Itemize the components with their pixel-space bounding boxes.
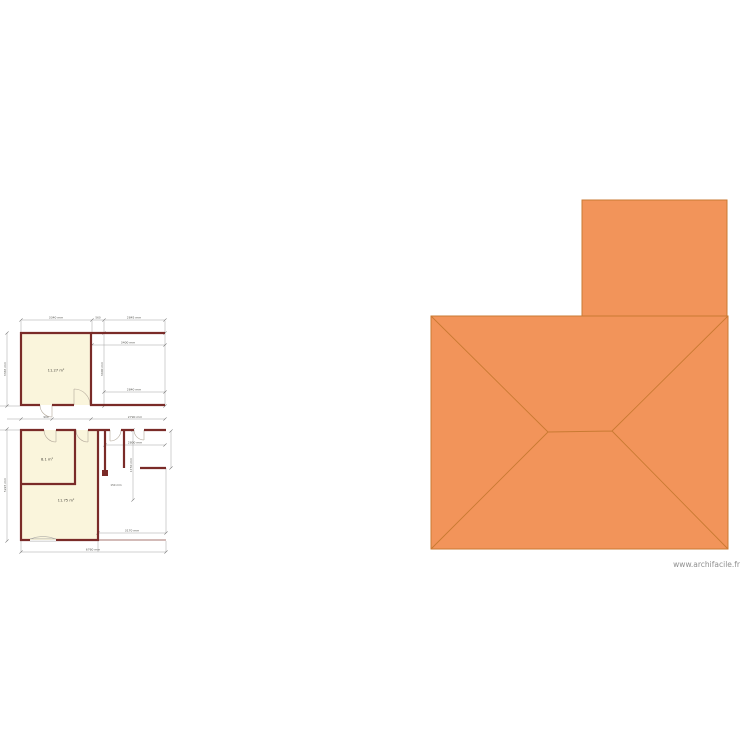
dim-label-left-top: 3365 mm xyxy=(3,362,7,377)
room-middle-area-label: 8.1 m² xyxy=(41,458,54,462)
watermark-text: www.archifacile.fr xyxy=(673,560,741,569)
dim-label-topright-v: 3400 mm xyxy=(100,362,104,377)
wall-pier[interactable] xyxy=(102,470,108,476)
dim-label-bottomright-h: 2800 mm xyxy=(128,441,143,445)
roof-main-rect[interactable] xyxy=(431,316,728,549)
dim-label-top-c: 2845 mm xyxy=(127,316,142,320)
roof-extension-rect[interactable] xyxy=(582,200,727,317)
dim-label-topright-h1: 3400 mm xyxy=(121,341,136,345)
dim-label-bottomright-v: 1750 mm xyxy=(129,458,133,473)
dim-label-corridor-a: 900 xyxy=(43,415,48,419)
dim-label-bottomright-small: 150 mm xyxy=(110,483,122,487)
floor-plan: 11.27 m² 8.1 m² 11.75 m² 3340 mm 560 284… xyxy=(0,316,173,554)
dim-label-corridor-b: 2790 mm xyxy=(128,415,143,419)
plan-canvas: 11.27 m² 8.1 m² 11.75 m² 3340 mm 560 284… xyxy=(0,0,750,750)
dim-label-bottom-b: 6760 mm xyxy=(86,548,101,552)
dim-label-topright-h2: 2840 mm xyxy=(127,388,142,392)
dim-label-top-a: 3340 mm xyxy=(49,316,64,320)
dim-label-left-bottom: 5225 mm xyxy=(3,478,7,493)
room-bottom-area-label: 11.75 m² xyxy=(58,499,75,503)
room-top-area-label: 11.27 m² xyxy=(48,369,65,373)
drawing-surface: 11.27 m² 8.1 m² 11.75 m² 3340 mm 560 284… xyxy=(0,0,750,750)
roof-plan xyxy=(431,200,728,549)
dim-label-bottom-a: 3170 mm xyxy=(125,529,140,533)
dim-label-top-b: 560 xyxy=(95,316,100,320)
